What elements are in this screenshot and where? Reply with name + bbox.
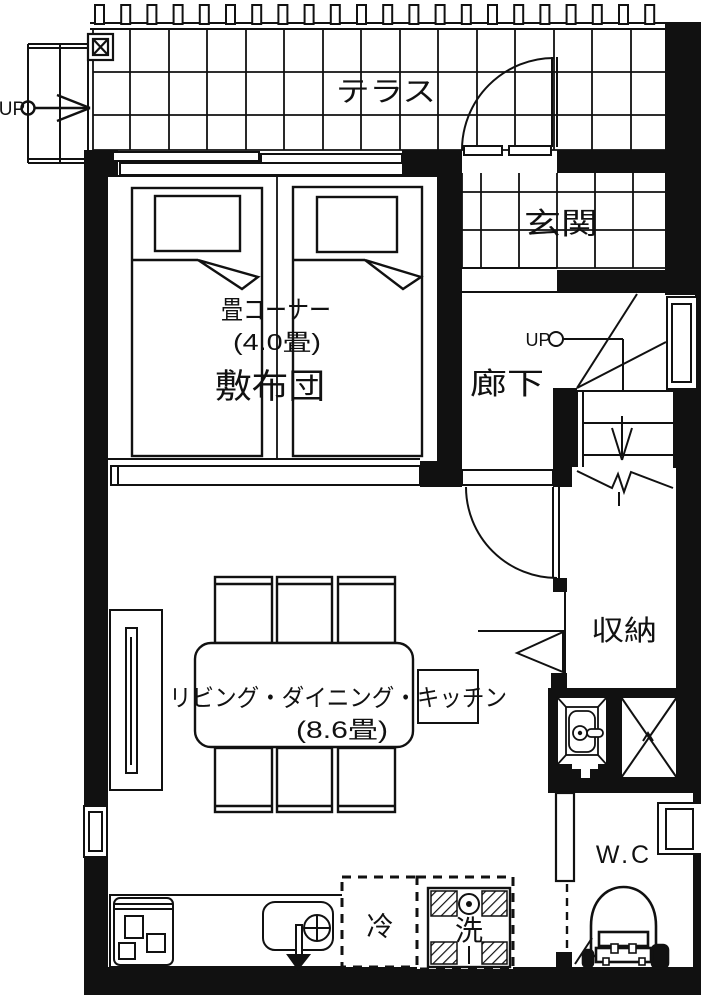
sliding-door-track: [120, 163, 403, 175]
wc-label: W.C: [596, 841, 652, 869]
fridge-label: 冷: [367, 912, 394, 942]
chair: [215, 577, 272, 643]
hallway-label: 廊下: [470, 368, 544, 401]
wall-right-stairs: [673, 390, 701, 468]
tap-symbol: [572, 764, 598, 769]
wall-door-stub: [553, 578, 567, 592]
wall-bottom: [84, 967, 701, 995]
tap-symbol: [581, 769, 590, 778]
wall-left: [84, 150, 108, 995]
stairs-window: [672, 304, 691, 382]
up-hall-label: UP: [525, 330, 550, 350]
chair: [338, 748, 395, 812]
floor-plan-page: UP: [0, 0, 701, 1000]
tatami-partition: [111, 466, 420, 485]
up-outside-label: UP: [0, 99, 25, 120]
door-sill: [464, 146, 502, 155]
storage-label: 収納: [591, 615, 657, 646]
ldk-label: リビング・ダイニング・キッチン: [169, 685, 507, 712]
column-marker-icon: [88, 34, 113, 60]
wall-stairs-top: [557, 270, 665, 293]
wall-tatami-hall: [437, 150, 462, 487]
tv-board: [110, 610, 162, 790]
washer-label: 洗: [455, 915, 483, 946]
tatami-size-label: (4.0畳): [233, 329, 321, 355]
chair: [338, 577, 395, 643]
ldk-size-label: (8.6畳): [296, 717, 388, 744]
sliding-door-panel: [113, 152, 259, 161]
wc-door-panel: [556, 793, 574, 881]
tatami-corner-label: 畳コーナー: [221, 295, 331, 325]
washstand: [557, 697, 607, 778]
door-sill: [462, 470, 553, 485]
kitchen-counter: [110, 895, 343, 969]
burner: [147, 934, 165, 952]
entrance-label: 玄関: [524, 208, 598, 241]
wc-window: [666, 809, 693, 849]
wall-right-niche: [690, 688, 701, 793]
pillow: [155, 196, 240, 251]
wall-right-mid: [676, 468, 701, 688]
sliding-door-panel: [261, 154, 402, 163]
pillow: [317, 197, 397, 252]
futon-label: 敷布団: [215, 368, 325, 406]
pipe-space: [621, 697, 677, 778]
wall-sill-post: [553, 467, 572, 487]
burner: [119, 943, 135, 959]
wall-hall-post: [420, 461, 462, 487]
wall-stairs-left: [553, 388, 577, 467]
door-sill: [509, 146, 551, 155]
chair: [215, 748, 272, 812]
wall-entrance-top: [557, 150, 665, 173]
chair: [277, 577, 332, 643]
chair: [277, 748, 332, 812]
living-window: [89, 812, 102, 851]
floor-plan-image: UP: [0, 0, 701, 1000]
wall-wc-door-stub: [556, 952, 572, 967]
burner: [125, 916, 143, 938]
faucet-handle: [587, 729, 603, 737]
wall-right-top: [665, 22, 701, 295]
faucet-spout: [296, 925, 302, 957]
terrace-label: テラス: [336, 76, 436, 107]
